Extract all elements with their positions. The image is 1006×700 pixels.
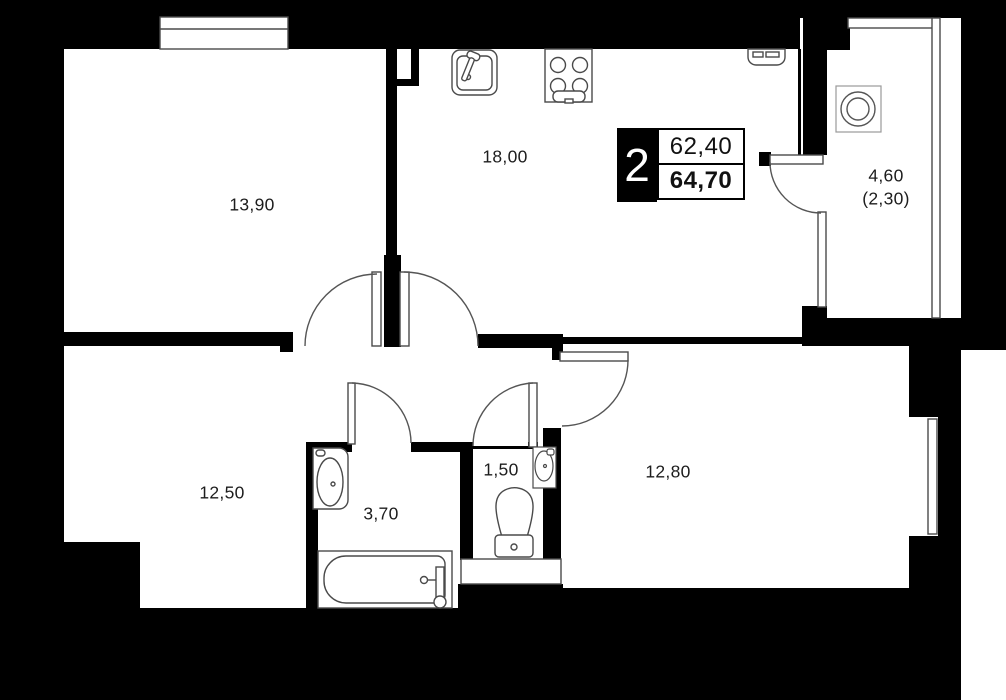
wall-bathroom-left bbox=[306, 442, 318, 608]
door-leaf-balcony bbox=[770, 155, 823, 164]
wall-below-wc bbox=[458, 584, 563, 700]
wall-bottomleft-block bbox=[64, 542, 140, 700]
wall-hinge-stub bbox=[552, 346, 563, 360]
room-label-wc: 1,50 bbox=[483, 460, 518, 481]
wall-bedroom-right-top bbox=[909, 345, 961, 417]
door-arc-bathroom bbox=[352, 383, 411, 443]
room-label-bathroom: 3,70 bbox=[363, 504, 398, 525]
wc-niche bbox=[461, 559, 561, 584]
room-label-hallway: 12,50 bbox=[199, 483, 244, 504]
wc-door-threshold bbox=[473, 446, 533, 449]
room-label-kitchen-living: 18,00 bbox=[482, 147, 527, 168]
room-label-bedroom-right: 12,80 bbox=[645, 462, 690, 483]
duct-frame-bottom bbox=[386, 79, 419, 86]
door-arc-balcony bbox=[770, 162, 821, 213]
door-leaf-bathroom bbox=[348, 383, 355, 444]
wall-beside-window bbox=[938, 417, 961, 536]
wall-bottom-band-right bbox=[561, 588, 961, 700]
wall-bathdoor-left bbox=[318, 442, 352, 452]
wall-stub bbox=[280, 344, 293, 352]
wall-top-band bbox=[0, 0, 800, 49]
balcony-glazing-door-side bbox=[818, 212, 826, 307]
wall-bath-wc-divider bbox=[460, 442, 473, 560]
balcony-door-stop bbox=[759, 152, 771, 166]
door-leaf-wc bbox=[529, 383, 537, 447]
toilet-icon bbox=[495, 488, 533, 557]
wall-hall-bedroom-left bbox=[64, 332, 293, 346]
wall-balcony-corner bbox=[827, 18, 850, 50]
balcony-glazing-right bbox=[932, 18, 940, 318]
wall-bedroom-right-bottom bbox=[909, 536, 961, 588]
room-label-balcony: 4,60 bbox=[868, 166, 903, 187]
wall-left-band bbox=[0, 0, 64, 700]
wall-right-block bbox=[961, 0, 1006, 350]
total-area-value: 64,70 bbox=[657, 163, 745, 200]
bathtub-icon bbox=[318, 551, 452, 608]
wall-kitchen-bedroom-thin bbox=[562, 337, 802, 344]
door-leaf-kitchen bbox=[400, 272, 409, 346]
door-arc-kitchen bbox=[404, 272, 478, 346]
washbasin-icon bbox=[313, 448, 348, 509]
extractor-panel-icon bbox=[748, 49, 785, 65]
wall-bottom-band-left bbox=[140, 608, 460, 700]
balcony-glazing-top bbox=[848, 18, 933, 28]
wall-kitchen-right-thin bbox=[798, 49, 801, 155]
window-bedroom-right bbox=[909, 417, 938, 536]
wall-topright-band bbox=[795, 0, 963, 18]
wall-bathdoor-right bbox=[411, 442, 461, 452]
wc-door-foot bbox=[528, 442, 538, 449]
door-arc-wc bbox=[473, 383, 533, 446]
room-label-bedroom-left: 13,90 bbox=[229, 195, 274, 216]
room-label-balcony-reduced: (2,30) bbox=[862, 189, 910, 210]
rooms-count: 2 bbox=[617, 128, 657, 202]
door-arc-bedroom-right bbox=[562, 360, 628, 426]
kitchen-sink-icon bbox=[452, 50, 497, 95]
wall-hall-segment bbox=[478, 334, 563, 348]
apartment-area-badge: 2 62,40 64,70 bbox=[617, 128, 745, 202]
wall-wc-right bbox=[543, 428, 561, 560]
ventilation-fan-icon bbox=[836, 86, 881, 132]
door-leaf-bedroom-right bbox=[560, 352, 628, 361]
wall-center-pillar bbox=[384, 255, 401, 347]
stove-icon bbox=[545, 49, 592, 103]
floor-plan: 13,90 18,00 4,60 (2,30) 12,50 3,70 1,50 … bbox=[0, 0, 1006, 700]
door-arc-bedroom-left bbox=[305, 274, 377, 346]
door-leaf-bedroom-left bbox=[372, 272, 381, 346]
wall-balcony-bottom bbox=[802, 318, 961, 346]
wall-balcony-column bbox=[803, 18, 827, 155]
duct-opening bbox=[397, 49, 411, 79]
living-area-value: 62,40 bbox=[657, 128, 745, 165]
